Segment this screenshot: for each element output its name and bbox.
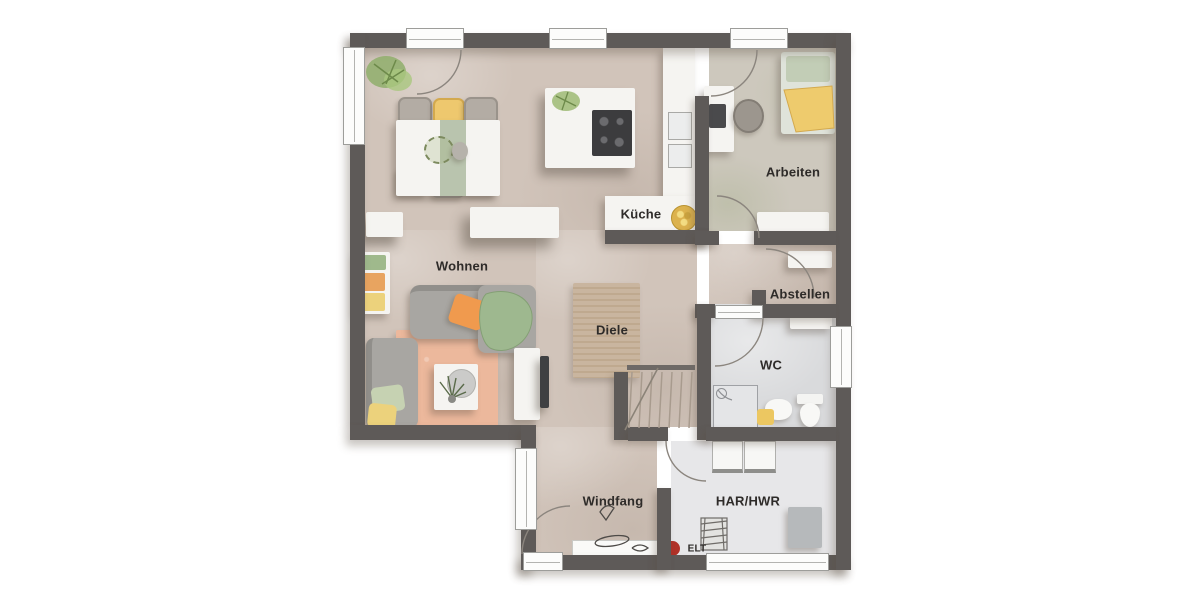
- wall-stairs-west: [614, 372, 628, 440]
- office-chair: [733, 99, 764, 133]
- wall-kueche-south: [605, 230, 709, 244]
- window: [730, 28, 788, 49]
- kitchen-sink: [668, 144, 692, 168]
- window: [549, 28, 607, 49]
- tv-lowboard: [514, 348, 540, 420]
- room-label-diele: Diele: [596, 323, 628, 338]
- storage-shelf: [788, 251, 832, 268]
- wc-door-sill: [715, 305, 763, 319]
- room-label-har-hwr: HAR/HWR: [716, 494, 780, 509]
- towel: [757, 409, 774, 425]
- laptop-icon: [709, 104, 726, 128]
- floor-windfang: [536, 427, 657, 555]
- wall-arbeiten-south-a: [695, 231, 719, 245]
- wall-abstellen-south-b: [763, 304, 836, 318]
- daybed-pillow: [786, 56, 830, 82]
- shower: [713, 385, 758, 428]
- window: [706, 553, 829, 571]
- wall-mid-south-a: [628, 427, 668, 441]
- shower-head-icon: [716, 388, 727, 399]
- wall-mid-south-b: [706, 427, 836, 441]
- kitchen-sink: [668, 112, 692, 140]
- room-label-arbeiten: Arbeiten: [766, 165, 820, 180]
- fruit-bowl-icon: [671, 205, 697, 231]
- room-label-kueche: Küche: [621, 207, 662, 222]
- floor-plan: Wohnen Küche Arbeiten Abstellen Diele WC…: [0, 0, 1200, 600]
- window: [830, 326, 852, 388]
- stairs-rail: [627, 365, 695, 370]
- terrace-door: [406, 28, 464, 49]
- entrance-door: [523, 552, 563, 571]
- room-label-elt: ELT: [688, 544, 707, 555]
- sideboard: [366, 212, 403, 237]
- room-label-wc: WC: [760, 358, 782, 373]
- wall-wc-west: [697, 304, 711, 440]
- table-wreath-decor: [424, 136, 454, 164]
- room-label-windfang: Windfang: [583, 494, 644, 509]
- sideboard: [470, 207, 559, 238]
- sofa-chaise: [478, 285, 536, 353]
- wall-kueche-arbeiten: [695, 96, 709, 244]
- dryer: [744, 441, 776, 473]
- room-label-abstellen: Abstellen: [770, 287, 830, 302]
- window: [515, 448, 537, 530]
- wall-wohnen-south: [350, 425, 536, 440]
- table-vase-decor: [452, 142, 468, 160]
- wall-exterior-right: [836, 33, 851, 570]
- room-label-wohnen: Wohnen: [436, 259, 488, 274]
- tray-decor: [447, 369, 476, 398]
- wall-arbeiten-south-b: [754, 231, 836, 245]
- washing-machine: [712, 441, 743, 473]
- sideboard: [757, 212, 829, 232]
- cooktop-icon: [592, 110, 632, 156]
- heat-pump-unit: [788, 507, 822, 548]
- window: [343, 47, 365, 145]
- wall-windfang-har: [657, 488, 671, 570]
- tv-icon: [540, 356, 549, 408]
